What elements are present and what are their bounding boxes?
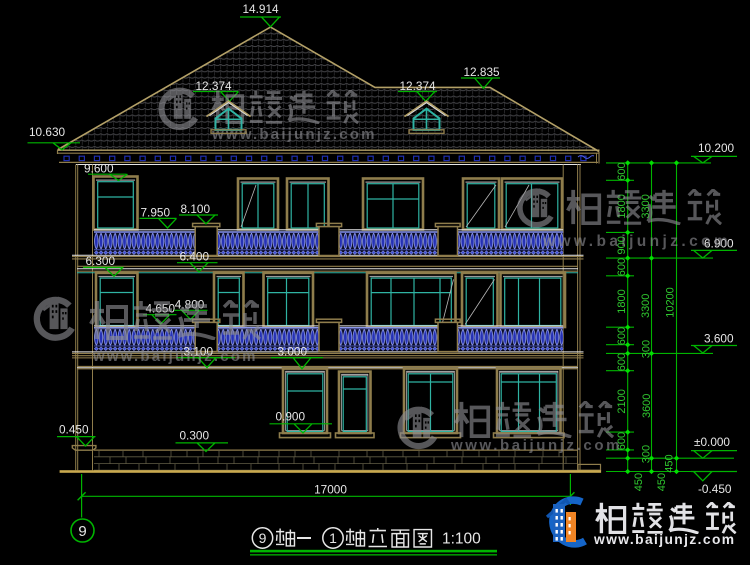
svg-text:9: 9 bbox=[259, 530, 267, 546]
svg-text:600: 600 bbox=[616, 258, 628, 276]
svg-text:450: 450 bbox=[656, 473, 668, 491]
svg-text:0.450: 0.450 bbox=[59, 423, 89, 437]
svg-text:10.630: 10.630 bbox=[29, 125, 66, 139]
svg-text:450: 450 bbox=[633, 473, 645, 491]
svg-text:9.600: 9.600 bbox=[84, 162, 114, 176]
svg-text:8.100: 8.100 bbox=[181, 202, 211, 216]
svg-text:www.baijunjz.com: www.baijunjz.com bbox=[450, 437, 622, 454]
svg-text:3300: 3300 bbox=[640, 294, 652, 318]
svg-text:600: 600 bbox=[616, 353, 628, 371]
svg-text:17000: 17000 bbox=[314, 483, 347, 497]
svg-text:7.950: 7.950 bbox=[141, 205, 171, 219]
svg-text:600: 600 bbox=[616, 327, 628, 345]
svg-text:6.400: 6.400 bbox=[180, 249, 210, 263]
svg-text:6.300: 6.300 bbox=[86, 254, 116, 268]
svg-text:0.900: 0.900 bbox=[276, 410, 306, 424]
svg-text:1800: 1800 bbox=[616, 289, 628, 313]
svg-text:300: 300 bbox=[641, 445, 653, 463]
svg-text:300: 300 bbox=[641, 340, 653, 358]
svg-text:www.baijunjz.com: www.baijunjz.com bbox=[542, 233, 731, 250]
svg-text:3.000: 3.000 bbox=[278, 344, 308, 358]
svg-text:2100: 2100 bbox=[616, 389, 628, 413]
svg-text:www.baijunjz.com: www.baijunjz.com bbox=[211, 126, 377, 143]
svg-text:1:100: 1:100 bbox=[442, 531, 481, 548]
svg-text:www.baijunjz.com: www.baijunjz.com bbox=[92, 348, 258, 365]
svg-text:9: 9 bbox=[78, 523, 86, 540]
svg-text:3600: 3600 bbox=[641, 394, 653, 418]
svg-text:10200: 10200 bbox=[665, 287, 677, 318]
svg-text:3.600: 3.600 bbox=[704, 332, 734, 346]
svg-text:-0.450: -0.450 bbox=[698, 482, 732, 496]
svg-text:0.300: 0.300 bbox=[180, 428, 210, 442]
svg-text:600: 600 bbox=[616, 162, 628, 180]
svg-text:450: 450 bbox=[664, 454, 676, 472]
svg-text:14.914: 14.914 bbox=[243, 2, 280, 16]
svg-text:10.200: 10.200 bbox=[698, 141, 735, 155]
svg-text:www.baijunjz.com: www.baijunjz.com bbox=[593, 532, 735, 547]
svg-text:±0.000: ±0.000 bbox=[694, 435, 730, 449]
svg-text:12.835: 12.835 bbox=[464, 65, 501, 79]
svg-text:1: 1 bbox=[329, 530, 337, 546]
